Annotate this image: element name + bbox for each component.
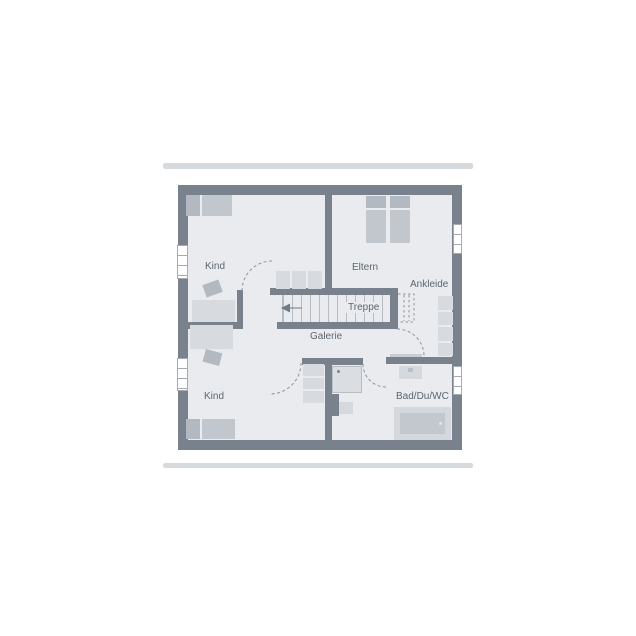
bed-pillow-eltern-left [366,196,386,208]
window-bad [453,366,462,395]
sliding-door-strip [390,354,422,357]
washbasin-shower-room [339,402,353,414]
floorplan-page: Kind Eltern Ankleide Treppe Galerie Kind… [0,0,636,636]
desk-kind-top [192,300,235,322]
shower-drain-dot [337,370,340,373]
wall-stair-right [390,295,398,322]
wall-shower-stub [332,394,339,416]
cabinet-cell [303,378,324,390]
window-eltern [453,224,462,254]
label-eltern: Eltern [352,262,378,273]
wall-stair-bottom [277,322,398,329]
label-treppe: Treppe [346,302,381,313]
label-kind-bottom: Kind [204,391,224,402]
bed-pillow-kind-top [186,195,200,216]
cabinet-kind-bottom [303,364,324,403]
wardrobe-hall [276,271,322,289]
bed-kind-top [202,195,232,216]
cabinet-cell [303,391,324,403]
window-kind-bottom [177,358,188,391]
wardrobe-ankleide [438,296,453,356]
bathtub-drain-dot [439,422,442,425]
top-divider-bar [163,163,473,169]
label-galerie: Galerie [310,331,342,342]
window-kind-top [177,245,188,279]
label-kind-top: Kind [205,261,225,272]
cabinet-cell [303,364,324,376]
wardrobe-cell [308,271,322,289]
washbasin-tap [408,368,413,372]
bottom-divider-bar [163,463,473,468]
bed-eltern-right [390,210,410,243]
wardrobe-cell [276,271,290,289]
desk-kind-bottom [190,325,233,349]
label-ankleide: Ankleide [410,279,448,290]
wardrobe-cell [292,271,306,289]
wall-kind-eltern-divider [325,195,332,288]
bed-eltern-left [366,210,386,243]
wardrobe-cell [438,327,453,341]
bed-pillow-kind-bottom [186,419,200,439]
wardrobe-cell [438,312,453,326]
wardrobe-cell [438,296,453,310]
wardrobe-cell [438,343,453,357]
wall-kind-bad-divider [325,362,332,440]
bed-pillow-eltern-right [390,196,410,208]
wall-galerie-bad [386,357,452,364]
bed-kind-bottom [202,419,235,439]
wall-stub-kind-door [237,290,243,322]
label-bad: Bad/Du/WC [396,391,449,402]
wall-stair-top [270,288,398,295]
